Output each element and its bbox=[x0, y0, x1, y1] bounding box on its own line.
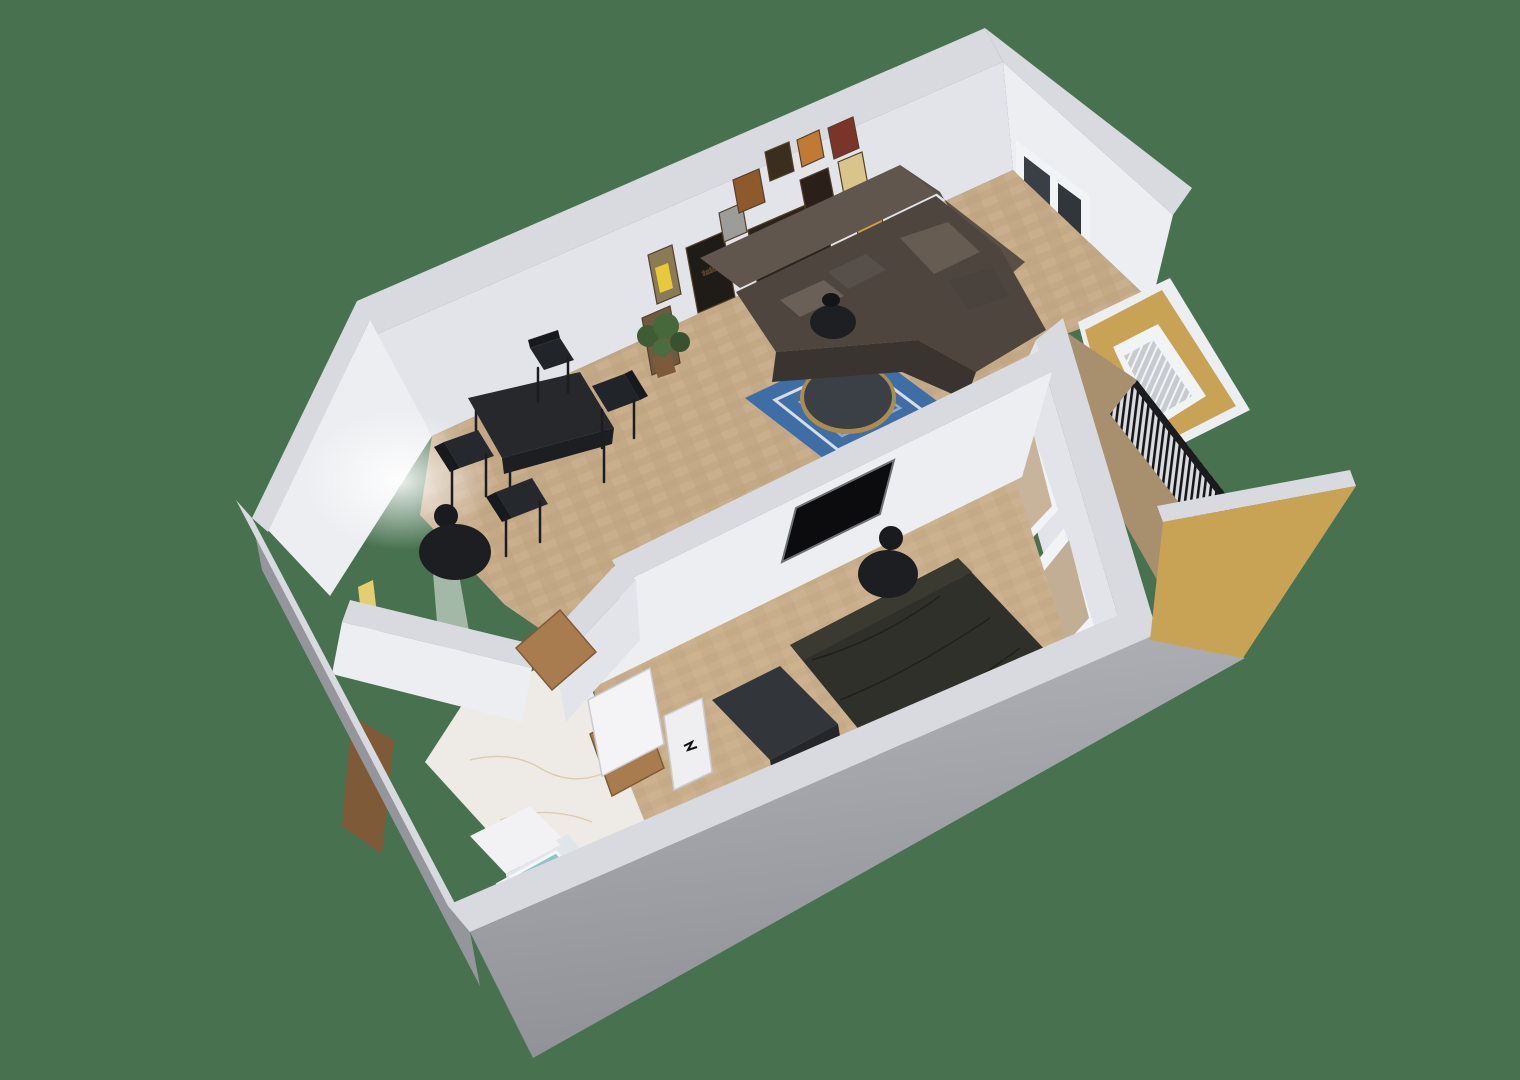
lamp-disc-shade bbox=[419, 524, 491, 580]
side-table-stem bbox=[822, 293, 840, 307]
plant-leaves bbox=[670, 332, 690, 352]
lamp-head bbox=[879, 526, 903, 550]
side-table-top bbox=[810, 305, 856, 339]
floorplan-3d-scene: Beer Point bbox=[0, 0, 1520, 1080]
lamp-disc-shade bbox=[858, 550, 918, 598]
floorplan-render-stage: Beer Point bbox=[0, 0, 1520, 1080]
plant-leaves bbox=[653, 339, 671, 357]
